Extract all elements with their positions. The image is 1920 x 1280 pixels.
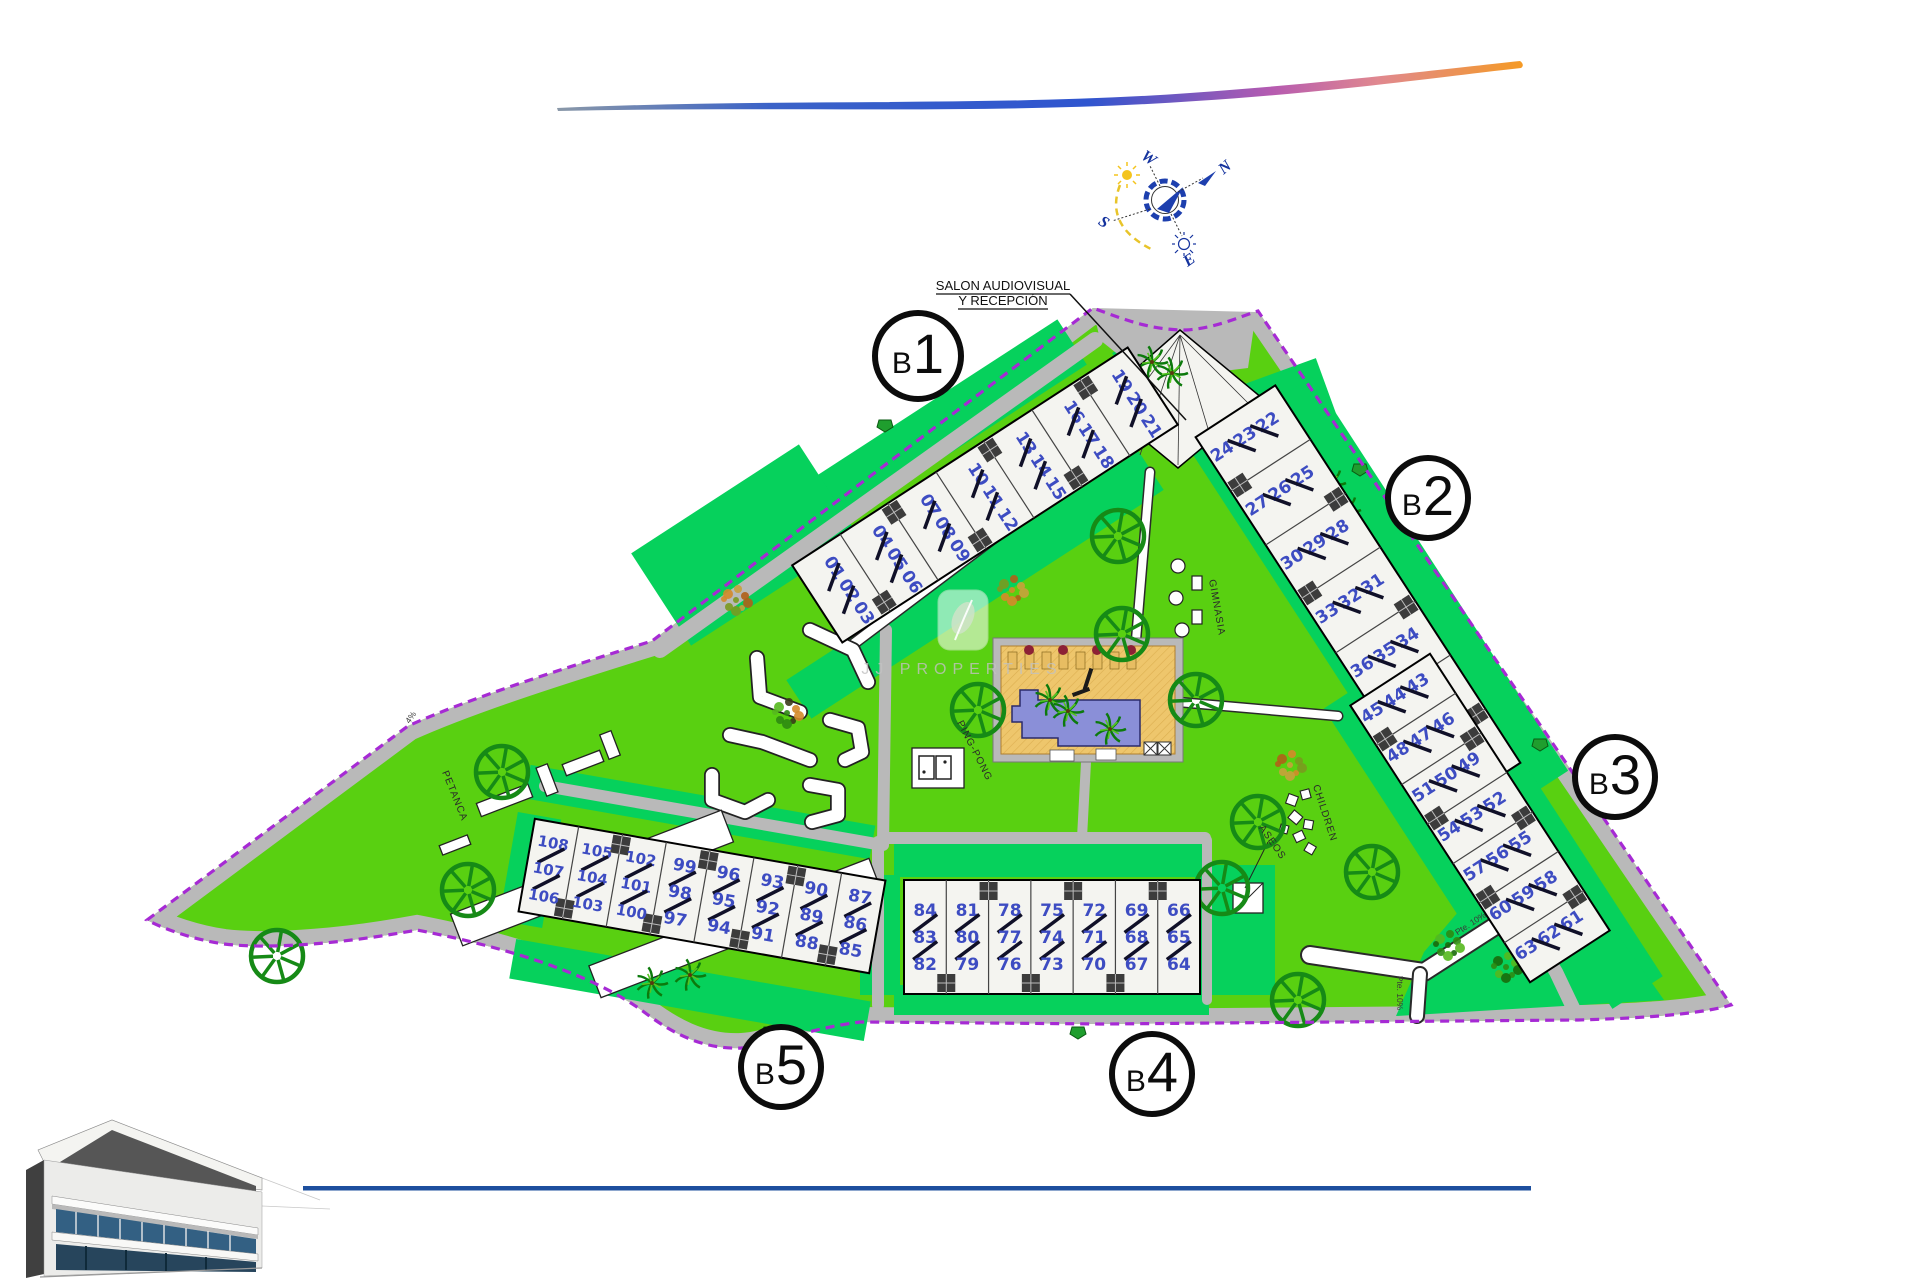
site-plan-page: W N S E — [0, 0, 1920, 1280]
stairwell-hatch — [729, 929, 750, 950]
compass-s-label: S — [1095, 213, 1112, 232]
compass-sun-icon — [1122, 170, 1132, 180]
unit-number: 88 — [793, 931, 820, 955]
header-swoosh — [557, 61, 1523, 111]
block-label-B2: B2 — [1388, 458, 1468, 538]
parasol-icon — [1024, 645, 1034, 655]
unit-number: 82 — [913, 955, 937, 975]
compass-rose: W N S E — [1095, 147, 1236, 271]
watermark-text: JJ PROPERTIES — [861, 661, 1062, 678]
site-plan-canvas: W N S E — [0, 0, 1920, 1280]
block-label-B1: B1 — [875, 313, 961, 399]
unit-number: 79 — [956, 955, 980, 975]
block-building-B4: 8483828180797877767574737271706968676665… — [904, 880, 1200, 994]
stairwell-hatch — [937, 974, 955, 992]
unit-number: 97 — [662, 908, 689, 932]
unit-number: 85 — [837, 939, 864, 963]
unit-number: 73 — [1040, 955, 1064, 975]
stairwell-hatch — [1106, 974, 1124, 992]
road-gradient-label: Pte. 10% — [1395, 976, 1405, 1011]
unit-number: 64 — [1167, 955, 1191, 975]
stairwell-hatch — [1149, 882, 1167, 900]
footer-line — [303, 1186, 1531, 1191]
compass-e-label: E — [1179, 250, 1198, 271]
reception-label-line2: Y RECEPCIÓN — [958, 293, 1047, 308]
pool-area — [993, 638, 1183, 762]
parasol-icon — [1058, 645, 1068, 655]
stairwell-hatch — [980, 882, 998, 900]
block-label-B3: B3 — [1575, 737, 1655, 817]
stairwell-hatch — [698, 850, 719, 871]
stairwell-hatch — [817, 944, 838, 965]
block-label-B5: B5 — [741, 1027, 821, 1107]
block-label-B4: B4 — [1112, 1034, 1192, 1114]
building-rendering — [26, 1120, 330, 1278]
unit-number: 76 — [998, 955, 1022, 975]
stairwell-hatch — [1064, 882, 1082, 900]
pingpong-area — [912, 748, 964, 788]
stairwell-hatch — [785, 866, 806, 887]
unit-number: 94 — [706, 916, 733, 940]
sun-outline-icon — [1179, 239, 1190, 250]
compass-w-label: W — [1138, 147, 1161, 170]
north-arrow — [1198, 171, 1216, 186]
reception-label-line1: SALON AUDIOVISUAL — [936, 278, 1070, 293]
entrance-marker-icon — [1070, 1027, 1086, 1039]
stairwell-hatch — [1022, 974, 1040, 992]
unit-number: 70 — [1082, 955, 1106, 975]
compass-n-label: N — [1214, 156, 1236, 178]
unit-number: 91 — [749, 923, 776, 947]
unit-number: 67 — [1125, 955, 1149, 975]
lounger-icon — [1076, 652, 1085, 669]
site-plot: 0102030405060708091011121314151617181920… — [147, 308, 1731, 1048]
